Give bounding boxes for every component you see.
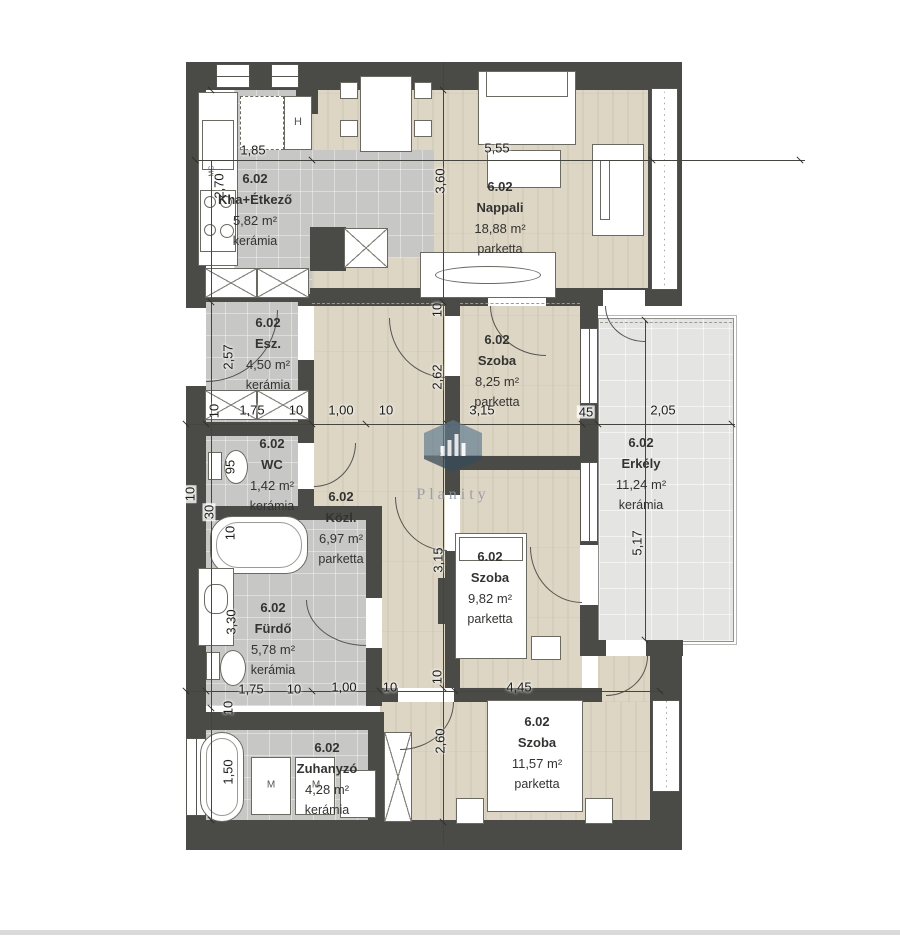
ceiling-lamp-icon [435,266,541,284]
room-area: 5,78 m² [251,639,295,660]
dim-label: 5,17 [631,530,644,555]
room-area: 5,82 m² [218,210,292,231]
wall-furdo-south [186,712,382,730]
dim-label: 5,55 [484,142,509,155]
dim-label: 10 [224,526,237,540]
room-label-kozl: 6.02 Közl. 6,97 m² parketta [318,486,363,570]
dim-label: 10 [431,670,444,684]
sofa-back-icon [486,71,568,97]
dim-label: 1,00 [331,681,356,694]
dim-label: 2,62 [431,364,444,389]
nightstand-icon [531,636,561,660]
dim-label: 1,85 [240,144,265,157]
room-name: WC [250,454,294,475]
wall-szoba1-south [445,456,596,470]
dim-label: 1,75 [238,683,263,696]
room-name: Zuhanyzó [297,758,358,779]
room-floor-type: kerámia [251,660,295,681]
dashed-guide [312,303,444,304]
room-name: Szoba [512,732,562,753]
dim-label: 10 [222,701,235,715]
door-gap-esz-corridor [298,306,314,360]
room-name: Esz. [246,333,290,354]
dim-line-v-left [211,160,212,820]
floor-plan: 1,85 5,55 3,60 2,70 2,57 10 1,75 10 1,00… [0,0,900,938]
dim-label: 95 [224,460,237,474]
door-gap-furdo [366,598,382,648]
room-unit: 6.02 [474,329,519,350]
door-gap-erkely-szoba3 [606,640,646,656]
room-label-szoba-2: 6.02 Szoba 9,82 m² parketta [467,546,512,630]
room-floor-type: parketta [512,774,562,795]
dim-label: 1,75 [239,404,264,417]
dim-label: 3,30 [225,609,238,634]
footer-divider [0,930,900,935]
window-szoba2-erkely [580,462,598,542]
room-area: 8,25 m² [474,371,519,392]
room-name: Erkély [616,453,666,474]
dim-label: 10 [184,485,197,503]
room-name: Fürdő [251,618,295,639]
room-label-kitchen: 6.02 Kha+Étkező 5,82 m² kerámia [218,168,292,252]
room-floor-type: parketta [467,609,512,630]
room-floor-type: kerámia [250,496,294,517]
room-area: 6,97 m² [318,528,363,549]
room-area: 4,50 m² [246,354,290,375]
room-label-zuhanyzo: 6.02 Zuhanyzó 4,28 m² kerámia [297,737,358,821]
tv-icon [600,160,610,220]
room-name: Nappali [474,197,525,218]
dim-label: 1,50 [222,759,235,784]
dim-label: 10 [289,404,303,417]
dim-label: 10 [431,303,444,317]
wall-kitchen-block [310,227,346,271]
chair-icon [340,120,358,137]
room-unit: 6.02 [251,597,295,618]
room-name: Kha+Étkező [218,189,292,210]
wall-bottom [186,820,682,850]
room-unit: 6.02 [512,711,562,732]
room-floor-type: parketta [318,549,363,570]
dashed-guide [600,322,732,323]
door-gap-szoba2-erkely [580,545,598,605]
dim-label: 10 [379,404,393,417]
chair-icon [414,82,432,99]
window-szoba3-east [652,700,680,792]
room-label-nappali: 6.02 Nappali 18,88 m² parketta [474,176,525,260]
room-floor-type: kerámia [218,231,292,252]
room-name: Szoba [467,567,512,588]
dim-label: 30 [203,503,216,521]
room-unit: 6.02 [250,433,294,454]
room-area: 4,28 m² [297,779,358,800]
room-area: 18,88 m² [474,218,525,239]
room-label-esz: 6.02 Esz. 4,50 m² kerámia [246,312,290,396]
dim-line-h-mid [186,424,735,425]
room-label-wc: 6.02 WC 1,42 m² kerámia [250,433,294,517]
dashed-guide [460,303,580,304]
dim-label: 3,60 [434,168,447,193]
room-name: Szoba [474,350,519,371]
door-gap-entrance [186,308,206,386]
dishwasher-letter: MG [209,165,216,176]
window-szoba1-erkely [580,328,598,404]
room-unit: 6.02 [218,168,292,189]
room-floor-type: parketta [474,392,519,413]
room-label-furdo: 6.02 Fürdő 5,78 m² kerámia [251,597,295,681]
room-unit: 6.02 [474,176,525,197]
dim-label: 2,05 [650,404,675,417]
door-gap-szoba1 [445,316,460,376]
dim-line-h-top [195,160,805,161]
kitchen-sink-icon [202,120,234,170]
dim-label: 1,00 [328,404,353,417]
esz-closet-icon [205,268,257,298]
door-gap-wc [298,443,314,489]
room-floor-type: parketta [474,239,525,260]
wc-tank-icon [206,652,220,680]
room-name: Közl. [318,507,363,528]
dim-label: 45 [577,406,595,419]
esz-closet-icon [257,268,309,298]
room-unit: 6.02 [318,486,363,507]
washer-letter: M [267,780,275,791]
room-label-erkely: 6.02 Erkély 11,24 m² kerámia [616,432,666,516]
chair-icon [340,82,358,99]
room-unit: 6.02 [467,546,512,567]
nightstand-icon [585,798,613,824]
room-unit: 6.02 [297,737,358,758]
fridge-letter: H [294,116,302,128]
dim-label: 10 [208,404,221,418]
room-floor-type: kerámia [616,495,666,516]
dim-label: 2,57 [222,344,235,369]
room-area: 11,24 m² [616,474,666,495]
window-kitchen-a [216,64,250,88]
room-label-szoba-1: 6.02 Szoba 8,25 m² parketta [474,329,519,413]
room-area: 1,42 m² [250,475,294,496]
window-kitchen-b [271,64,299,88]
washer-letter: M [312,780,320,791]
dim-label: 3,15 [432,547,445,572]
window-nappali-east [651,88,678,290]
kitchen-storage-icon [344,228,388,268]
dim-label: 2,60 [434,728,447,753]
room-floor-type: kerámia [246,375,290,396]
room-unit: 6.02 [616,432,666,453]
room-unit: 6.02 [246,312,290,333]
dim-label: 10 [287,683,301,696]
room-area: 9,82 m² [467,588,512,609]
door-gap-nappali-erkely [603,290,645,306]
room-floor-type: kerámia [297,800,358,821]
room-label-szoba-3: 6.02 Szoba 11,57 m² parketta [512,711,562,795]
dining-table-icon [360,76,412,152]
stove-burner-icon [204,224,216,236]
chair-icon [414,120,432,137]
room-area: 11,57 m² [512,753,562,774]
nightstand-icon [456,798,484,824]
dim-label: 10 [383,681,397,694]
dim-label: 4,45 [506,681,531,694]
